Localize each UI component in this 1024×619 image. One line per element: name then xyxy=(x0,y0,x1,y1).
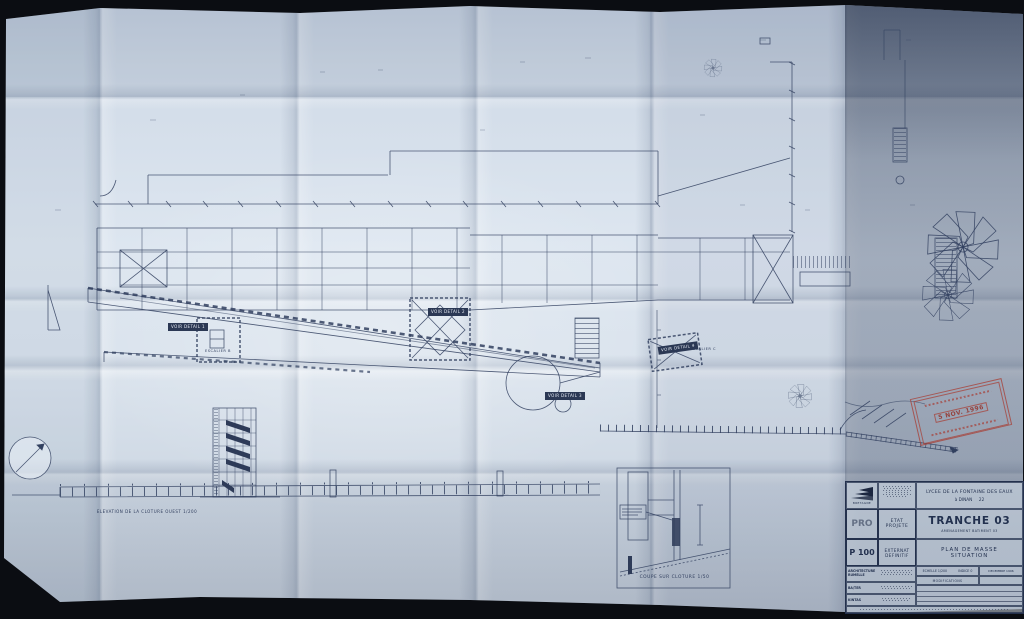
dimension-lines xyxy=(55,38,915,233)
drawing-number-cell: P 100 xyxy=(846,539,878,566)
agency-logo-cell: BRETAGNE xyxy=(846,482,878,509)
date-cell: DECEMBRE 1996 xyxy=(979,566,1023,576)
building-strip xyxy=(97,228,850,428)
consultant-name: BA/TER xyxy=(848,586,878,590)
coupe-detail xyxy=(617,468,730,588)
phase-code: PRO xyxy=(851,519,872,529)
operation-subtitle: AMENAGEMENT BATIMENT 03 xyxy=(941,529,997,533)
consultant-name: KINTAS xyxy=(848,598,878,602)
project-title-line2: à DINAN xyxy=(955,497,973,502)
indice-value: INDICE 0 xyxy=(958,569,972,573)
consultant-row: KINTAS xyxy=(846,594,916,606)
escalier-b-label: ESCALIER B xyxy=(205,349,231,353)
modifications-cell: MODIFICATIONS xyxy=(916,576,979,585)
phase-label-cell: ETAT PROJETE xyxy=(878,509,916,539)
footer-strip xyxy=(846,606,1023,613)
consultant-row: BA/TER xyxy=(846,582,916,594)
phase-label-2: PROJETE xyxy=(886,524,909,529)
modifications-label: MODIFICATIONS xyxy=(933,579,963,583)
photo-of-folded-plan: VOIR DETAIL 1 VOIR DETAIL 2 VOIR DETAIL … xyxy=(0,0,1024,619)
agency-logo-text: BRETAGNE xyxy=(853,501,871,505)
project-dept: 22 xyxy=(979,497,984,502)
date-value: DECEMBRE 1996 xyxy=(988,569,1013,573)
coupe-caption: COUPE SUR CLOTURE 1/50 xyxy=(622,575,727,580)
ramp-wedge xyxy=(88,288,600,377)
detail-label-1: VOIR DETAIL 1 xyxy=(168,323,208,331)
drawing-title-line2: SITUATION xyxy=(951,553,989,559)
scale-value: ECHELLE 1/200 xyxy=(923,569,947,573)
detail-label-3: VOIR DETAIL 3 xyxy=(545,392,585,400)
elevation-caption: ELEVATION DE LA CLOTURE OUEST 1/200 xyxy=(42,509,252,514)
bretagne-logo-icon xyxy=(851,487,873,501)
consultant-row: ARCHITECTURE RUMELLE xyxy=(846,566,916,582)
project-title-cell: LYCEE DE LA FONTAINE DES EAUX à DINAN 22 xyxy=(916,482,1023,509)
stamp-date: 5 NOV. 1996 xyxy=(934,402,989,423)
project-title-line1: LYCEE DE LA FONTAINE DES EAUX xyxy=(926,490,1013,495)
title-block: BRETAGNE PRO ETAT PROJETE P 100 EXTERNAT… xyxy=(845,481,1024,614)
agency-address-cell xyxy=(878,482,916,509)
tranche-title: TRANCHE 03 xyxy=(928,515,1010,527)
phase-code-cell: PRO xyxy=(846,509,878,539)
number-label-2: DEFINITIF xyxy=(885,553,909,558)
drawing-title-cell: PLAN DE MASSE SITUATION xyxy=(916,539,1023,566)
scale-indice-cell: ECHELLE 1/200 INDICE 0 xyxy=(916,566,979,576)
revision-rows xyxy=(916,585,1023,606)
drawing-number: P 100 xyxy=(849,548,874,557)
trees xyxy=(702,30,1008,411)
tranche-cell: TRANCHE 03 AMENAGEMENT BATIMENT 03 xyxy=(916,509,1023,539)
fence-plan xyxy=(600,401,958,453)
stair-tower xyxy=(200,408,280,497)
north-arrow-icon xyxy=(9,437,51,479)
consultant-name: RUMELLE xyxy=(848,573,878,577)
empty-cell xyxy=(979,576,1023,585)
detail-label-2: VOIR DETAIL 2 xyxy=(428,308,468,316)
fence-elevation xyxy=(12,470,600,497)
flag-shape xyxy=(48,285,60,330)
escalier-c-label: ESCALIER C xyxy=(690,347,716,351)
drawing-number-label-cell: EXTERNAT DEFINITIF xyxy=(878,539,916,566)
